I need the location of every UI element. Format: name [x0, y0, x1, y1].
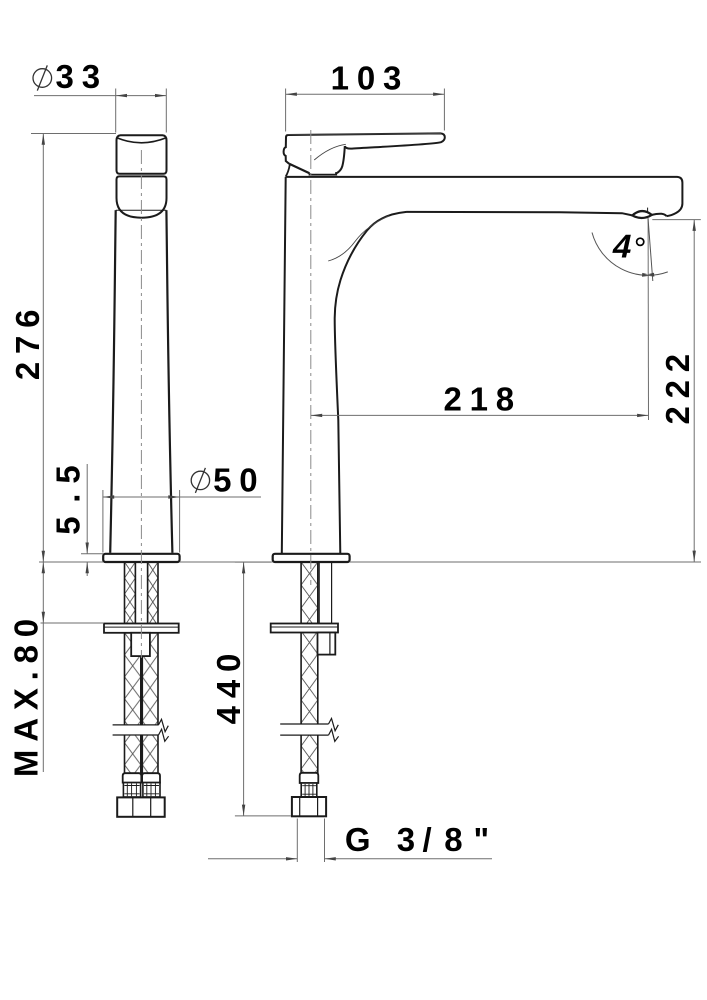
- svg-text:": ": [474, 821, 490, 858]
- svg-text:222: 222: [659, 346, 696, 424]
- svg-text:50: 50: [213, 462, 265, 499]
- svg-text:33: 33: [56, 58, 108, 95]
- svg-text:3: 3: [397, 821, 415, 858]
- svg-text:440: 440: [210, 646, 247, 724]
- svg-text:5.5: 5.5: [49, 465, 86, 534]
- svg-text:MAX.80: MAX.80: [7, 611, 44, 777]
- svg-text:218: 218: [443, 380, 521, 417]
- svg-text:8: 8: [444, 821, 462, 858]
- svg-text:103: 103: [331, 60, 409, 97]
- svg-text:/: /: [423, 821, 432, 858]
- svg-text:G: G: [345, 821, 371, 858]
- svg-text:276: 276: [9, 302, 46, 380]
